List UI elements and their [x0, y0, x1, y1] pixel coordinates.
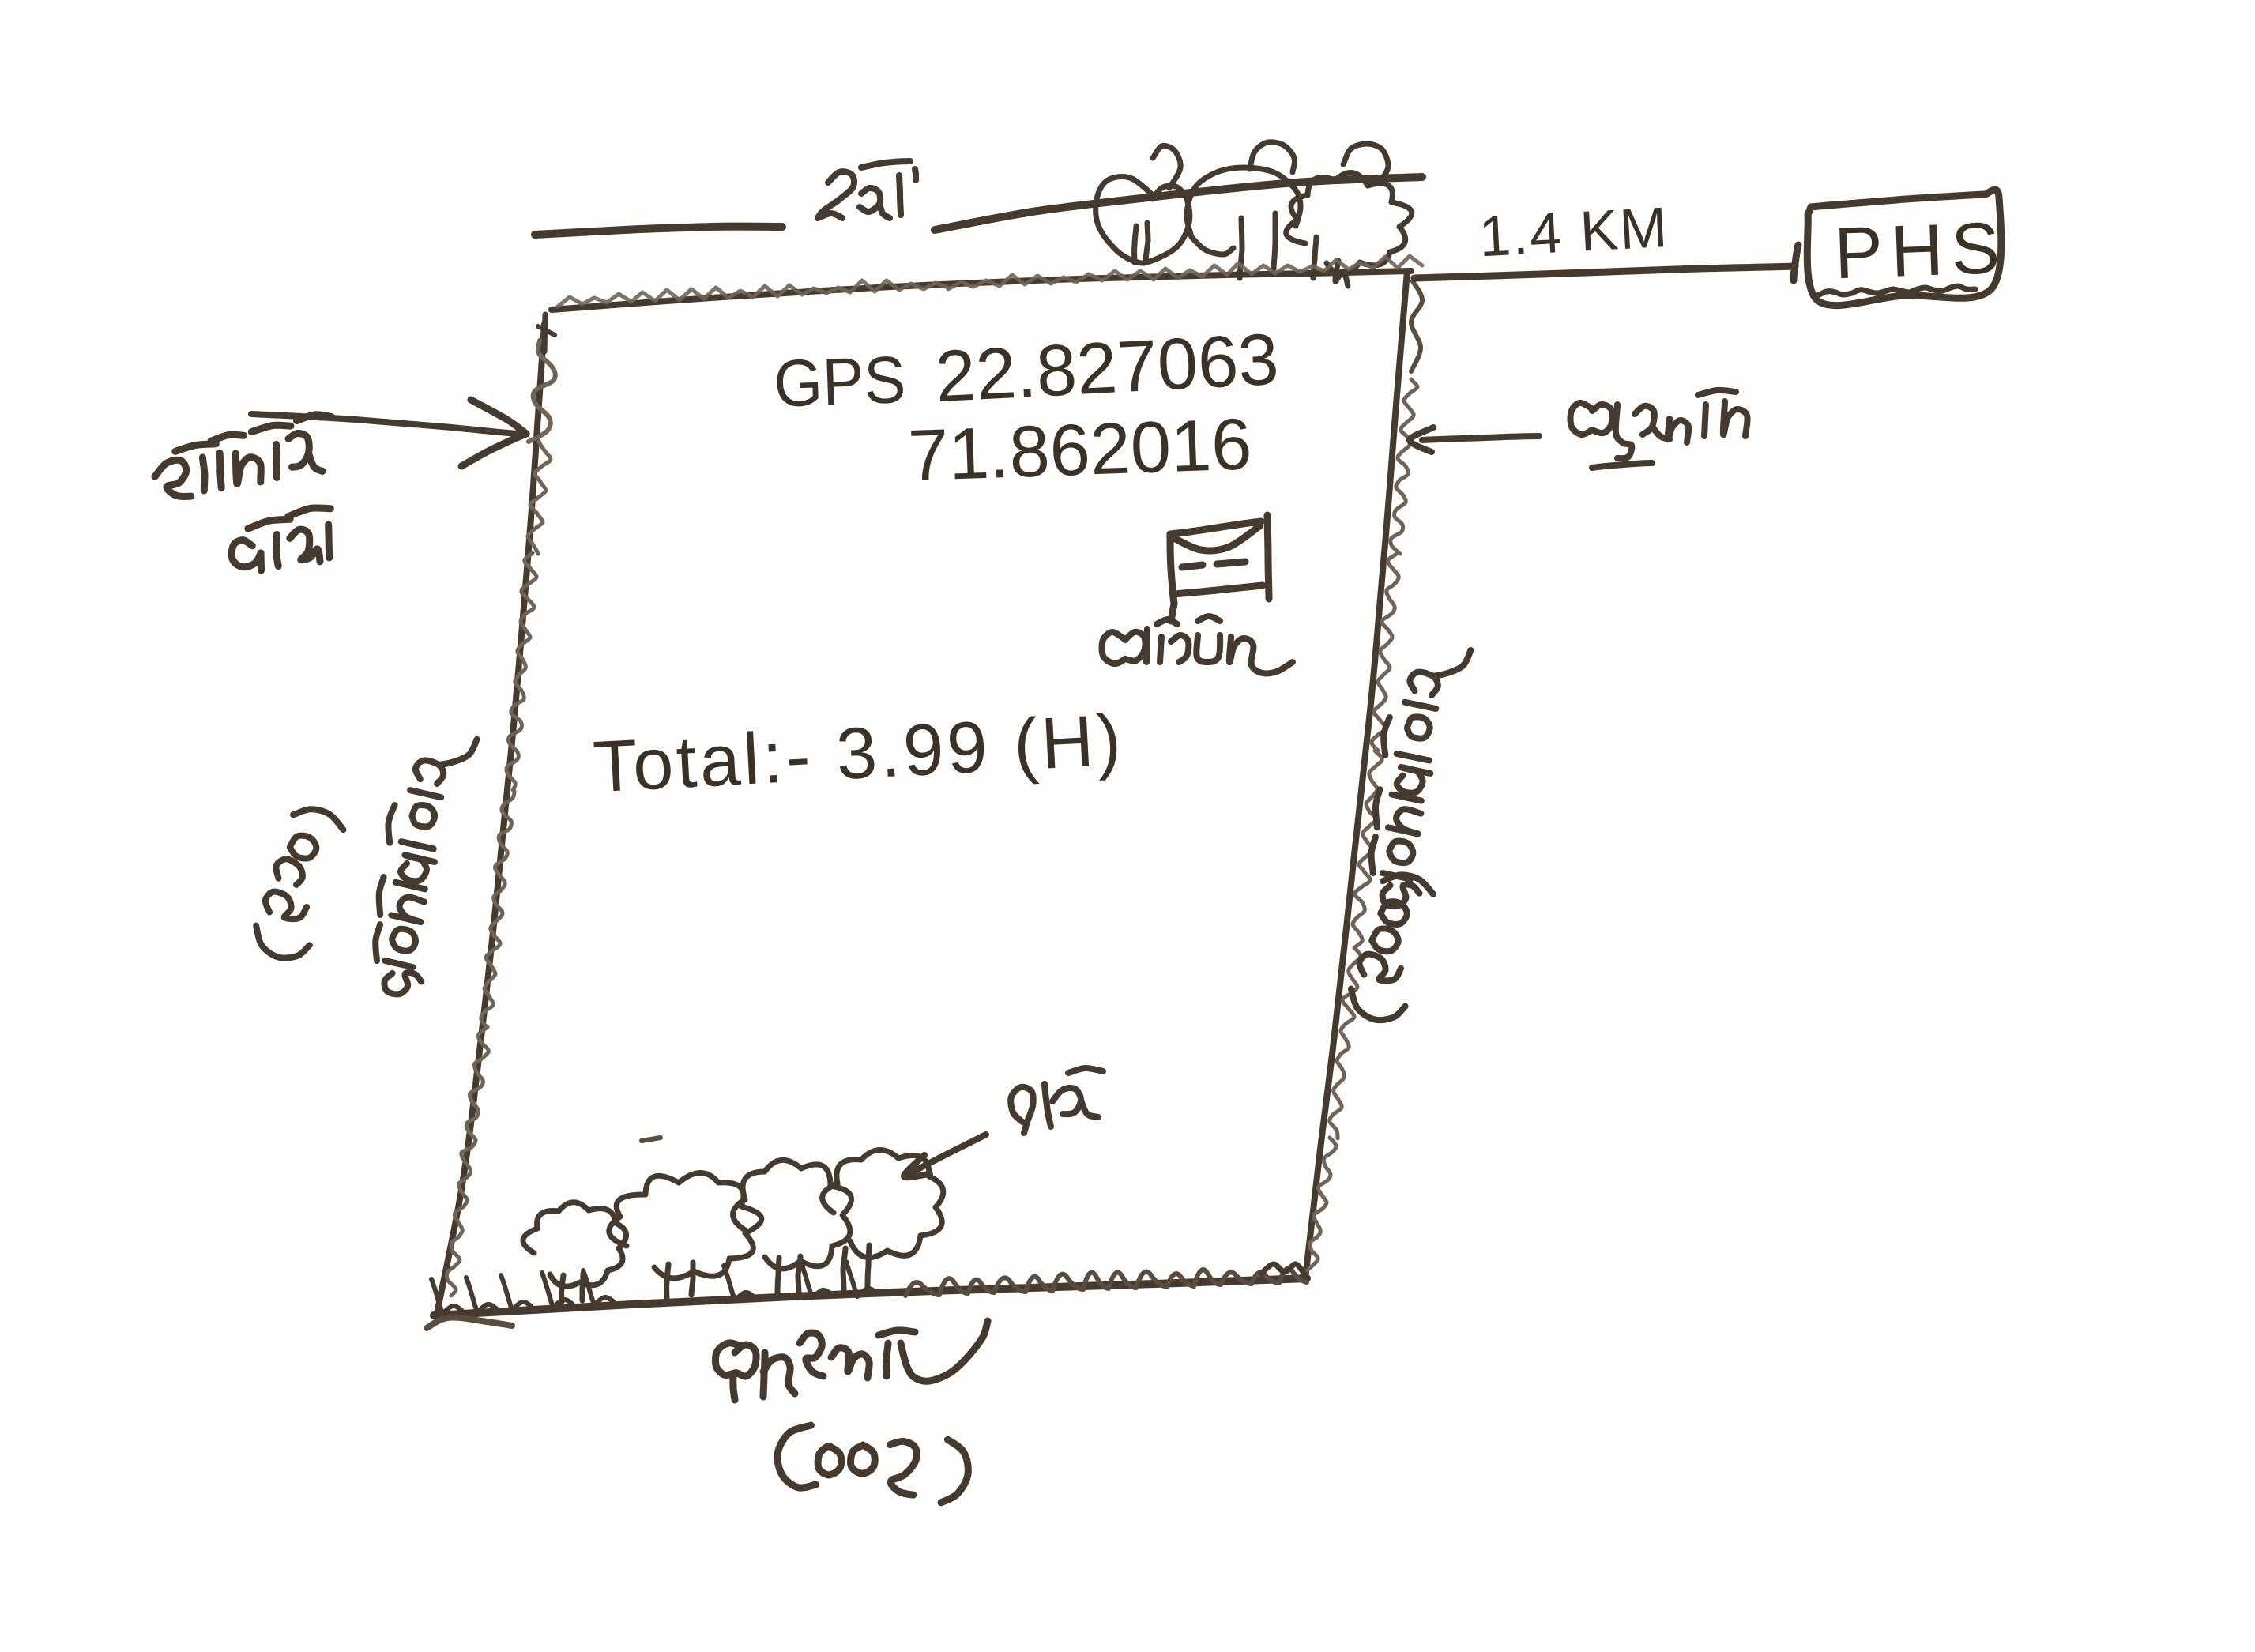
- svg-text:GPS: GPS: [773, 343, 907, 422]
- svg-text:PHS: PHS: [1833, 208, 2009, 295]
- svg-text:71.862016: 71.862016: [907, 404, 1253, 496]
- svg-text:1.4 KM: 1.4 KM: [1478, 196, 1670, 269]
